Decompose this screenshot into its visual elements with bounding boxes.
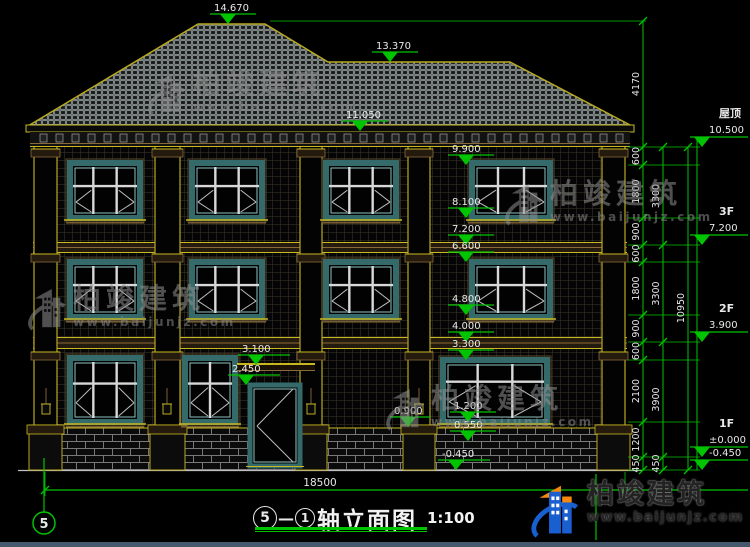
plinth-brick [35, 428, 625, 470]
dim-value: 900 [631, 222, 642, 240]
elevation-value: 4.800 [452, 294, 481, 305]
pilaster-capital [297, 149, 325, 157]
elevation-marker-triangle [694, 137, 710, 147]
floor-label: 2F [719, 302, 734, 315]
dentil-block [424, 134, 431, 142]
dentil-block [536, 134, 543, 142]
pilaster-capital [152, 352, 183, 360]
dentil-block [376, 134, 383, 142]
dentil-block [408, 134, 415, 142]
elevation-value: 0.550 [454, 420, 483, 431]
dentil-block [200, 134, 207, 142]
title-axis-separator: — [278, 509, 294, 528]
wall-lamp [307, 404, 315, 414]
window-frame [472, 163, 550, 218]
dentil-block [40, 134, 47, 142]
window-frame [70, 163, 140, 218]
title-underline-thin [255, 531, 427, 532]
elevation-value: 14.670 [214, 3, 249, 14]
pilaster [602, 147, 625, 425]
pilaster-capital [31, 254, 60, 262]
elevation-value: 6.600 [452, 241, 481, 252]
dentil-block [248, 134, 255, 142]
dentil-block [568, 134, 575, 142]
pilaster-capital [599, 254, 628, 262]
elevation-value: 2.450 [232, 364, 261, 375]
cad-elevation-screenshot: 14.67013.37011.0509.9008.1007.2006.6004.… [0, 0, 750, 547]
elevation-marker-triangle [694, 447, 710, 457]
dim-value: 1200 [631, 427, 642, 451]
brand-logo: 柏竣建筑 www.baijunjz.com [527, 481, 744, 547]
window-bottom-edge [0, 542, 750, 547]
elevation-drawing: 14.67013.37011.0509.9008.1007.2006.6004.… [0, 0, 750, 547]
pedestal-cap [27, 425, 64, 434]
pilaster-capital [405, 254, 433, 262]
pilaster-capital [31, 149, 60, 157]
elevation-marker-triangle [694, 235, 710, 245]
dentil-block [168, 134, 175, 142]
pedestal-cap [401, 425, 437, 434]
window-frame [472, 262, 550, 317]
elevation-value: 0.900 [394, 406, 423, 417]
dentil-block [296, 134, 303, 142]
dentil-block [472, 134, 479, 142]
dentil-block [584, 134, 591, 142]
pilaster-capital [599, 352, 628, 360]
dim-value: 600 [631, 147, 642, 165]
dim-value: 1800 [631, 276, 642, 300]
pilaster [34, 147, 57, 425]
dim-value: 600 [631, 342, 642, 360]
pilaster-capital [297, 254, 325, 262]
brand-logo-icon [527, 481, 583, 547]
dentil-block [88, 134, 95, 142]
roof-hip [28, 24, 632, 126]
pilaster-capital [152, 149, 183, 157]
window-frame [70, 262, 140, 317]
floor-band-3f [33, 242, 627, 253]
dim-value: 450 [631, 454, 642, 472]
dentil-block [344, 134, 351, 142]
window-frame [70, 358, 140, 422]
dentil-block [440, 134, 447, 142]
dim-value: 2100 [631, 379, 642, 403]
drawing-scale: 1:100 [427, 509, 475, 527]
floor-label: 1F [719, 417, 734, 430]
dentil-block [360, 134, 367, 142]
dentil-block [184, 134, 191, 142]
window-frame [443, 360, 547, 422]
pilaster-capital [405, 149, 433, 157]
total-width-dim: 18500 [303, 477, 336, 489]
dim-value: 3900 [651, 387, 662, 411]
elevation-marker-triangle [694, 460, 710, 470]
dentil-block [104, 134, 111, 142]
dentil-block [488, 134, 495, 142]
pilaster [155, 147, 180, 425]
dim-value: 900 [631, 319, 642, 337]
window-frame [326, 163, 396, 218]
dim-value: 3300 [651, 281, 662, 305]
pilaster-capital [31, 352, 60, 360]
floor-label: 屋顶 [719, 107, 741, 120]
dim-value: 3300 [651, 184, 662, 208]
pilaster-capital [405, 352, 433, 360]
title-axis-bubble-end: 1 [295, 508, 315, 528]
wall-lamp [163, 404, 171, 414]
dentil-block [616, 134, 623, 142]
dentil-block [56, 134, 63, 142]
elevation-value: 11.050 [346, 110, 381, 121]
elevation-marker-triangle [694, 332, 710, 342]
dentil-block [120, 134, 127, 142]
dentil-block [264, 134, 271, 142]
floor-elevation: 10.500 [709, 125, 744, 136]
elevation-value: 3.100 [242, 344, 271, 355]
dim-value: 1800 [631, 179, 642, 203]
dentil-block [312, 134, 319, 142]
elevation-value: 8.100 [452, 197, 481, 208]
dim-value: 450 [651, 454, 662, 472]
dim-value: 10950 [676, 293, 687, 323]
dentil-block [152, 134, 159, 142]
dentil-block [456, 134, 463, 142]
brand-logo-name: 柏竣建筑 [587, 481, 744, 508]
elevation-value: 4.000 [452, 321, 481, 332]
elevation-value: 13.370 [376, 41, 411, 52]
window-frame [192, 262, 262, 317]
dentil-block [216, 134, 223, 142]
dim-value: 4170 [631, 72, 642, 96]
window-frame [192, 163, 262, 218]
floor-elevation: -0.450 [709, 448, 741, 459]
floor-label: 3F [719, 205, 734, 218]
dentil-block [72, 134, 79, 142]
elevation-value: 1.200 [454, 401, 483, 412]
elevation-marker-triangle [382, 52, 398, 62]
brand-logo-url: www.baijunjz.com [587, 511, 744, 524]
dentil-block [600, 134, 607, 142]
dentil-block [328, 134, 335, 142]
dentil-block [520, 134, 527, 142]
dentil-block [136, 134, 143, 142]
pilaster-capital [599, 149, 628, 157]
elevation-value: 9.900 [452, 144, 481, 155]
title-underline-thick [255, 527, 427, 530]
dentil-block [280, 134, 287, 142]
dentil-block [232, 134, 239, 142]
pilaster [408, 147, 430, 425]
dentil-block [504, 134, 511, 142]
elevation-value: -0.450 [442, 449, 474, 460]
dim-value: 600 [631, 244, 642, 262]
floor-elevation: 3.900 [709, 320, 738, 331]
floor-elevation: 7.200 [709, 223, 738, 234]
pilaster [300, 147, 322, 425]
dentil-block [552, 134, 559, 142]
axis-bubble-number: 5 [39, 517, 48, 532]
pedestal-cap [595, 425, 632, 434]
wall-lamp [42, 404, 50, 414]
floor-band-2f [33, 337, 627, 349]
dentil-block [392, 134, 399, 142]
window-frame [326, 262, 396, 317]
pilaster-capital [152, 254, 183, 262]
floor-elevation: ±0.000 [709, 435, 746, 446]
elevation-value: 7.200 [452, 224, 481, 235]
elevation-value: 3.300 [452, 339, 481, 350]
pilaster-capital [297, 352, 325, 360]
elevation-marker-triangle [220, 14, 236, 24]
